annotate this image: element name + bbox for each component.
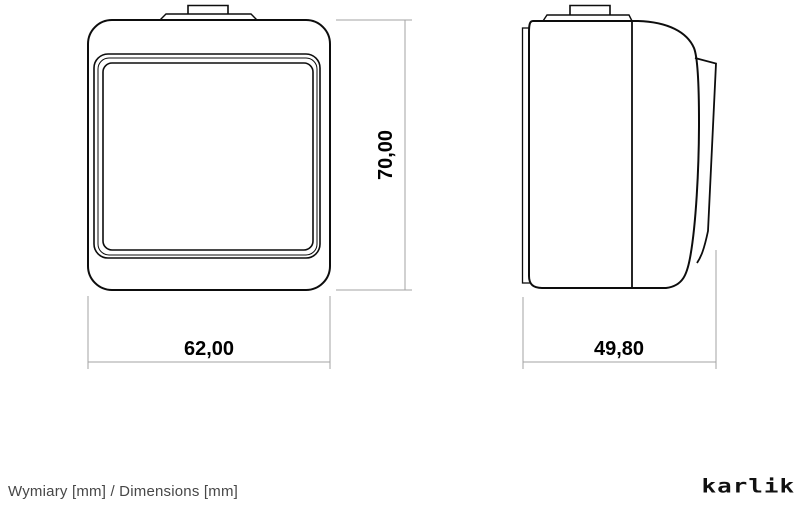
width-dimension-label: 62,00 [184, 338, 234, 360]
front-view [88, 6, 330, 291]
side-top-small-tab [570, 6, 610, 16]
technical-drawing-page: 70,00 62,00 49,80 Wymiary [mm] / Dimensi… [0, 0, 800, 508]
dimension-width: 62,00 [88, 296, 330, 369]
karlik-logo: karlik [701, 476, 795, 497]
side-view [523, 6, 717, 289]
side-body [529, 21, 699, 288]
dimension-drawing-svg: 70,00 62,00 49,80 [0, 0, 800, 508]
front-top-small-tab [188, 6, 228, 15]
units-caption: Wymiary [mm] / Dimensions [mm] [8, 483, 238, 500]
height-dimension-label: 70,00 [375, 130, 397, 180]
depth-dimension-label: 49,80 [594, 338, 644, 360]
front-rocker-button [103, 63, 313, 250]
dimension-height: 70,00 [336, 20, 412, 290]
